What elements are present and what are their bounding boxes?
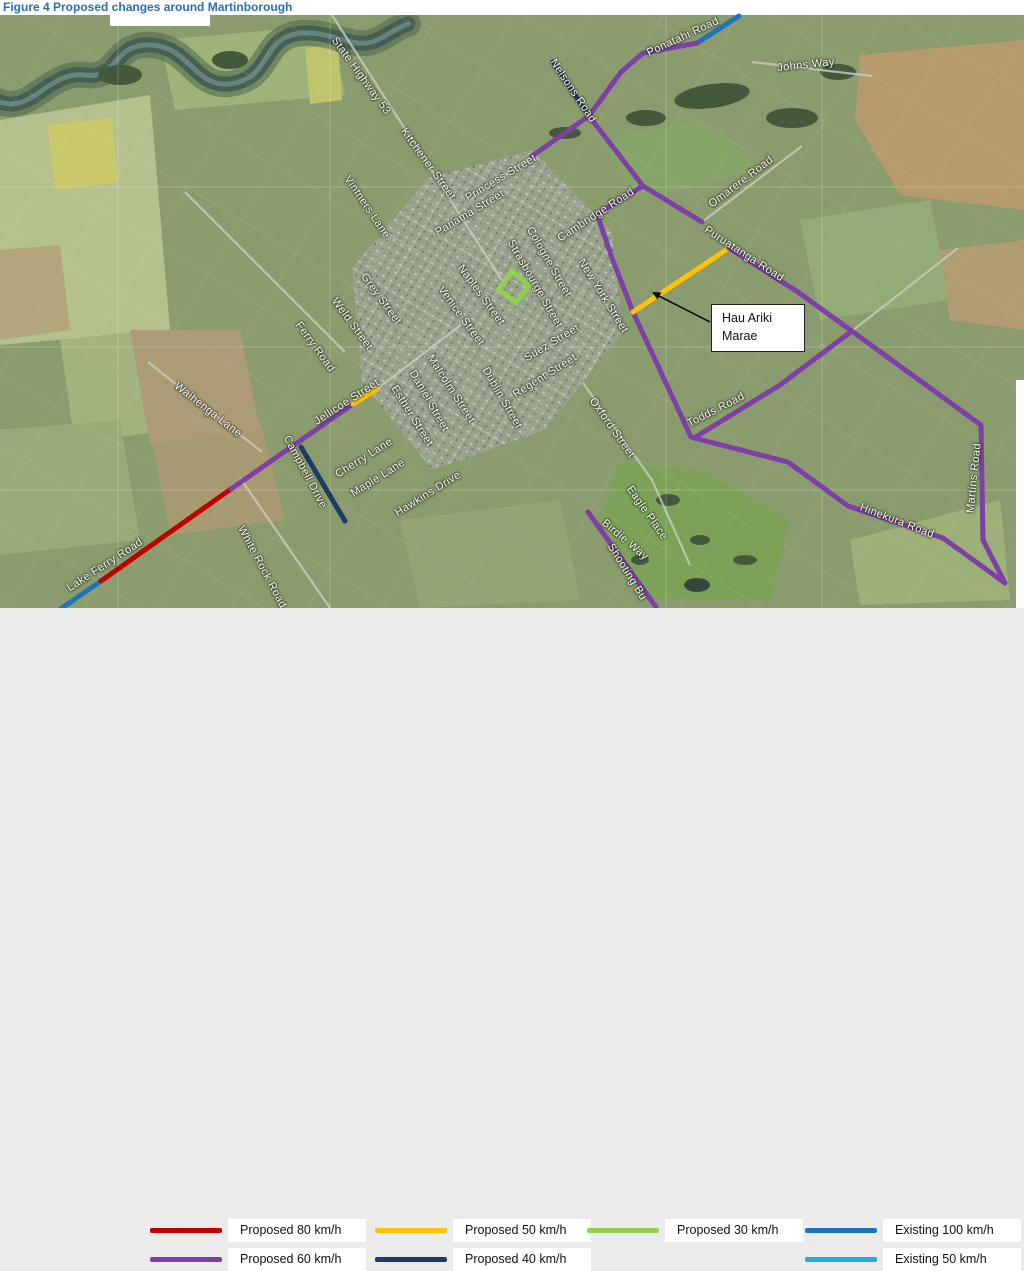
aerial-imagery [0, 15, 1024, 608]
legend-swatch-proposed-50 [375, 1228, 447, 1233]
legend-swatch-proposed-40 [375, 1257, 447, 1262]
legend: Proposed 80 km/h Proposed 50 km/h Propos… [0, 608, 1024, 669]
legend-item-proposed-80: Proposed 80 km/h [150, 1219, 366, 1242]
legend-label: Proposed 40 km/h [453, 1248, 591, 1271]
legend-label: Existing 50 km/h [883, 1248, 1021, 1271]
legend-label: Proposed 50 km/h [453, 1219, 591, 1242]
legend-item-proposed-50: Proposed 50 km/h [375, 1219, 591, 1242]
legend-swatch-proposed-60 [150, 1257, 222, 1262]
legend-item-proposed-30: Proposed 30 km/h [587, 1219, 803, 1242]
callout-text: Hau Ariki Marae [722, 311, 772, 343]
map-aerial-svg [0, 0, 1024, 669]
hau-ariki-marae-callout: Hau Ariki Marae [711, 304, 805, 352]
legend-label: Proposed 80 km/h [228, 1219, 366, 1242]
legend-item-proposed-60: Proposed 60 km/h [150, 1248, 366, 1271]
legend-item-existing-50: Existing 50 km/h [805, 1248, 1021, 1271]
legend-swatch-existing-100 [805, 1228, 877, 1233]
legend-item-existing-100: Existing 100 km/h [805, 1219, 1021, 1242]
figure-title: Figure 4 Proposed changes around Martinb… [3, 0, 292, 15]
legend-swatch-proposed-30 [587, 1228, 659, 1233]
legend-swatch-proposed-80 [150, 1228, 222, 1233]
map-edge-strip [1016, 380, 1024, 608]
legend-label: Existing 100 km/h [883, 1219, 1021, 1242]
legend-label: Proposed 30 km/h [665, 1219, 803, 1242]
legend-item-proposed-40: Proposed 40 km/h [375, 1248, 591, 1271]
figure-page: { "figure_title": "Figure 4 Proposed cha… [0, 0, 1024, 669]
legend-swatch-existing-50 [805, 1257, 877, 1262]
legend-label: Proposed 60 km/h [228, 1248, 366, 1271]
